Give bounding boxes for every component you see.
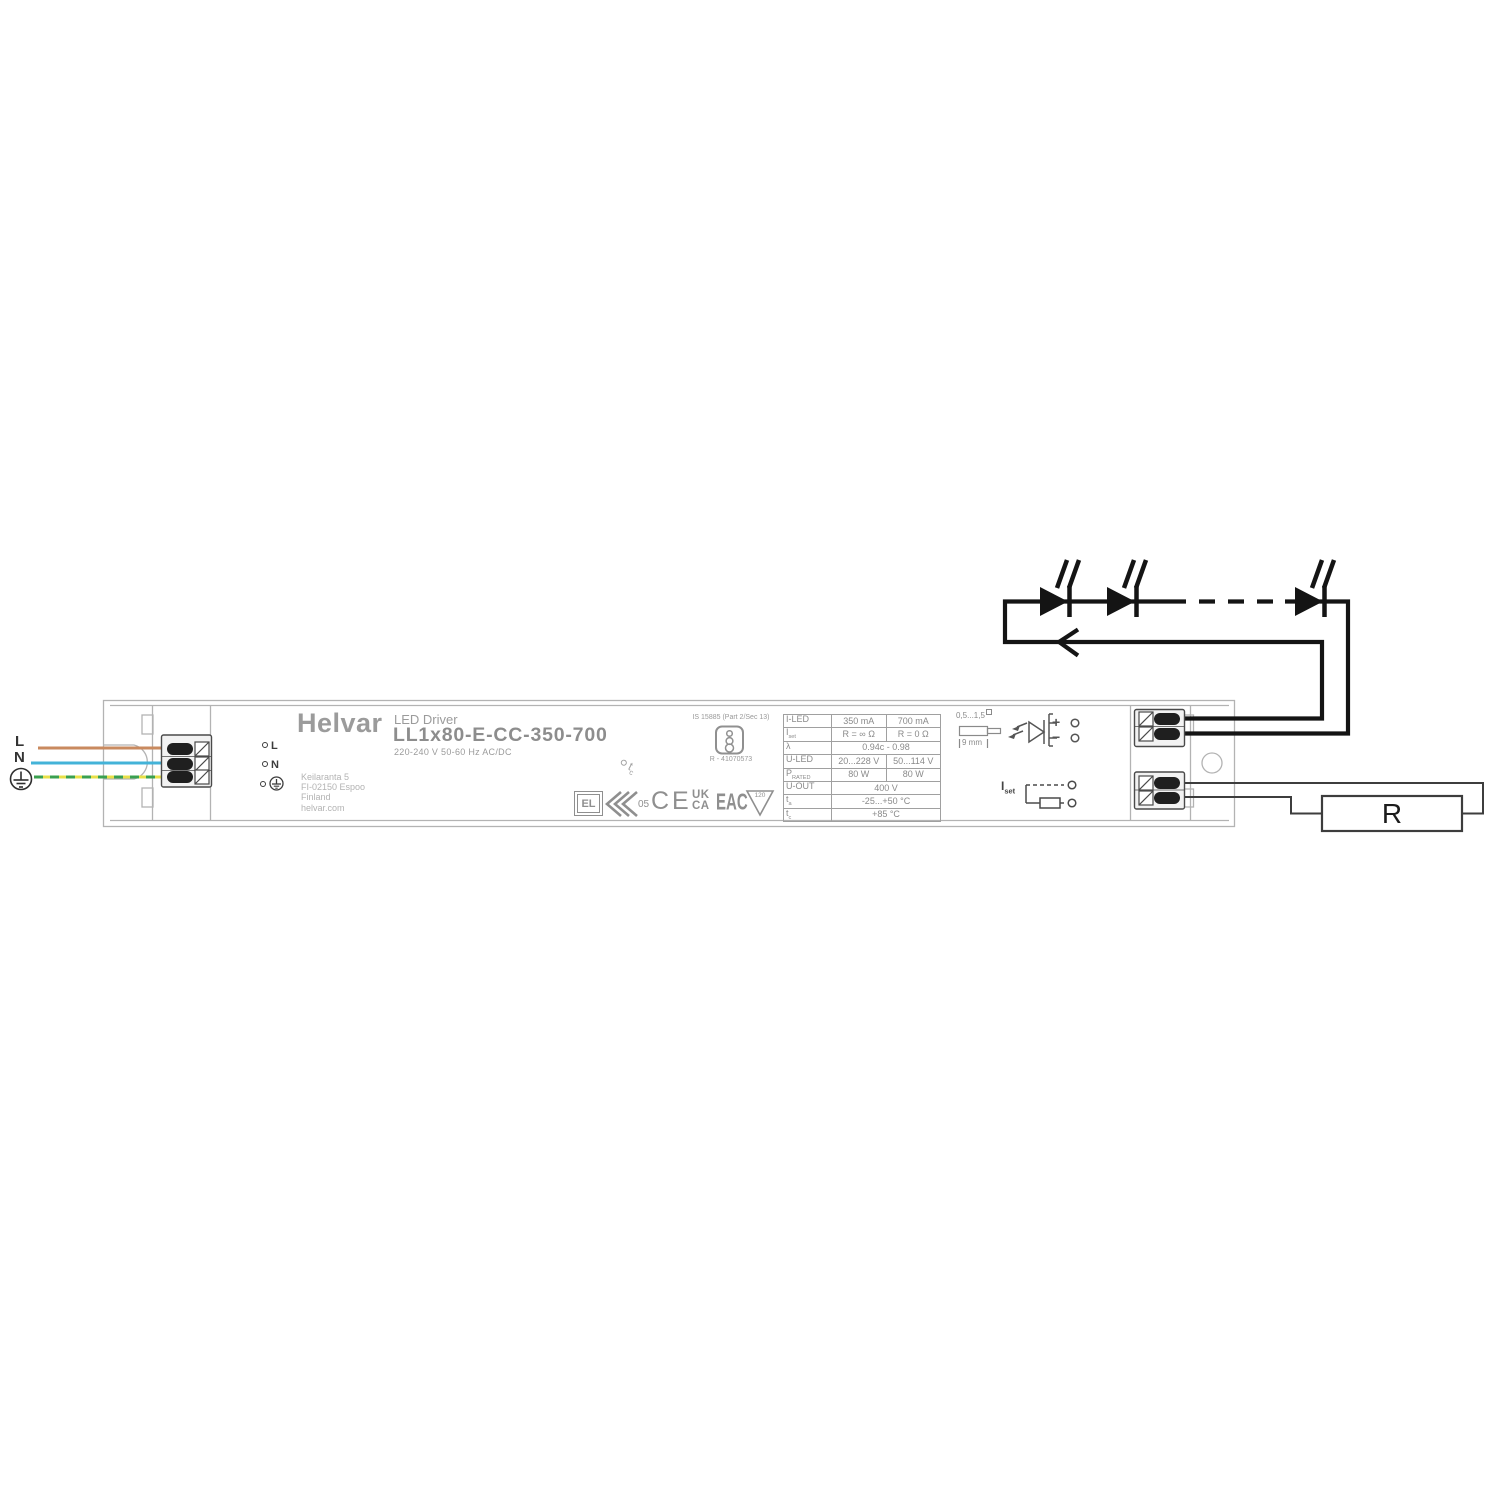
address-line: Keilaranta 5 (301, 772, 365, 782)
terminal-label-earth (260, 776, 284, 792)
wiring-diagram: L N Helvar LED Driver LL1x80-E-CC-350-70… (0, 0, 1499, 1499)
led-output-symbol (1008, 714, 1079, 746)
model-label: LL1x80-E-CC-350-700 (393, 726, 608, 746)
resistor-label: R (1324, 799, 1460, 829)
diagram-graphics (0, 0, 1499, 1499)
mark-05: 05 (638, 800, 649, 810)
address-line: FI-02150 Espoo (301, 782, 365, 792)
earth-terminal-icon (269, 776, 284, 791)
bis-logo-icon (716, 727, 743, 754)
el-mark: EL (574, 791, 603, 816)
terminal-dot-icon (262, 761, 268, 767)
ce-mark: CE (651, 789, 692, 814)
input-label-n: N (14, 750, 25, 765)
earth-symbol (11, 769, 32, 790)
address-block: Keilaranta 5 FI-02150 Espoo Finland helv… (301, 772, 365, 813)
bis-registration-text: R - 41070573 (683, 756, 779, 763)
spec-row-uout: U-OUT400 V (784, 781, 941, 794)
terminal-label-n: N (262, 760, 279, 771)
terminal-dot-icon (260, 781, 266, 787)
bis-standard-text: IS 15885 (Part 2/Sec 13) (683, 714, 779, 721)
ukca-mark: UKCA (692, 790, 710, 811)
spec-row-ta: ta-25...+50 °C (784, 795, 941, 808)
rating-label: 220-240 V 50-60 Hz AC/DC (394, 748, 512, 757)
led-symbol (1107, 560, 1146, 617)
input-label-l: L (15, 734, 24, 749)
spec-row-iset: IsetR = ∞ ΩR = 0 Ω (784, 728, 941, 741)
led-symbol (1295, 560, 1334, 617)
wire-gauge-label: 0,5...1,5 (956, 709, 992, 720)
spec-row-uled: U-LED20...228 V50...114 V (784, 755, 941, 768)
spec-row-tc: tc+85 °C (784, 808, 941, 821)
spec-table: I-LED350 mA700 mA IsetR = ∞ ΩR = 0 Ω λ0.… (783, 714, 941, 822)
terminal-dot-icon (262, 742, 268, 748)
terminal-label-l: L (262, 741, 278, 752)
minus-label: − (1052, 730, 1060, 744)
insulation-chevron-icon (607, 792, 637, 816)
iset-label: Iset (1001, 780, 1015, 795)
output-terminal-block-led (1135, 710, 1185, 747)
output-terminal-block-iset (1135, 772, 1185, 809)
spec-row-iled: I-LED350 mA700 mA (784, 715, 941, 728)
led-chain (1005, 560, 1348, 734)
input-terminal-block (162, 735, 212, 787)
spec-row-prated: PRATED80 W80 W (784, 768, 941, 781)
tc-dot-icon (620, 759, 628, 767)
address-line: Finland (301, 792, 365, 802)
address-line: helvar.com (301, 803, 365, 813)
plus-label: + (1052, 715, 1060, 729)
brand-logo: Helvar (297, 710, 383, 737)
iset-print-symbol (1026, 781, 1076, 808)
led-symbol (1040, 560, 1079, 617)
triangle-120-label: 120 (747, 793, 773, 800)
eac-mark: EAC (716, 791, 748, 814)
mounting-hole (1202, 753, 1222, 773)
mm2-square-icon (986, 709, 992, 715)
spec-row-lambda: λ0.94c - 0.98 (784, 741, 941, 754)
strip-length-label: 9 mm (962, 739, 982, 747)
